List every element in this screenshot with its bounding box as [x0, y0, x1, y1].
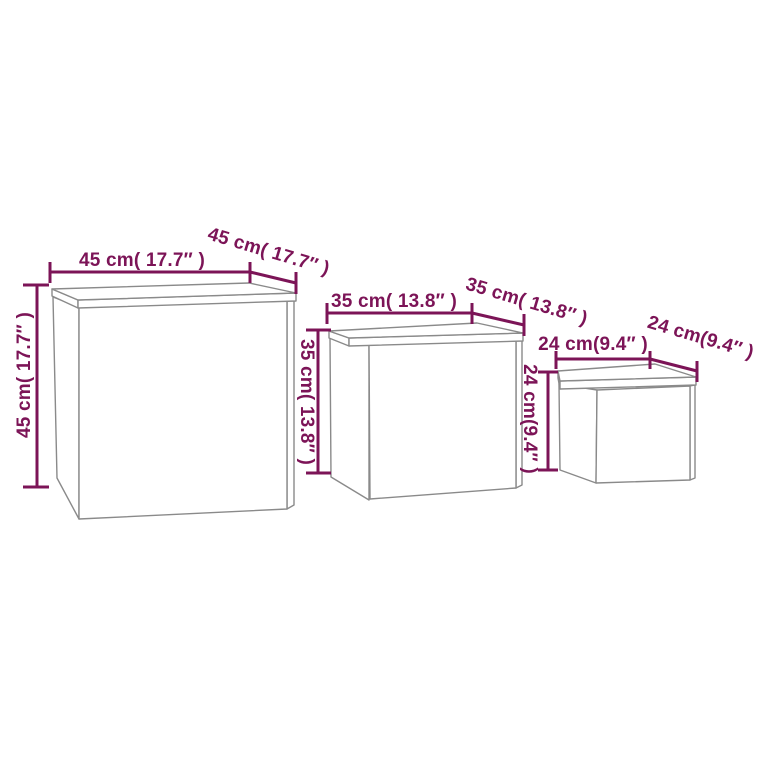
medium-depth-label: 35 cm( 13.8″ ): [463, 274, 590, 330]
large-table-right-panel: [287, 300, 294, 509]
diagram-svg: 45 cm( 17.7″ ) 45 cm( 17.7″ ) 45 cm( 17.…: [0, 0, 767, 767]
medium-height-label: 35 cm( 13.8″ ): [296, 339, 317, 465]
small-table-right-panel: [690, 385, 695, 480]
medium-table-drawing: [329, 323, 523, 500]
small-table-drawing: [558, 364, 696, 483]
large-table-front-face: [79, 301, 287, 519]
small-depth-label: 24 cm(9.4″ ): [645, 312, 756, 363]
large-height-label: 45 cm( 17.7″ ): [14, 312, 35, 438]
large-table-drawing: [52, 283, 296, 519]
large-width-label: 45 cm( 17.7″ ): [79, 250, 205, 271]
large-table-left-panel: [53, 297, 79, 519]
large-depth-dimension-line: [250, 272, 296, 283]
product-dimension-diagram: 45 cm( 17.7″ ) 45 cm( 17.7″ ) 45 cm( 17.…: [0, 0, 767, 767]
medium-table-left-panel: [330, 338, 369, 500]
small-width-label: 24 cm(9.4″ ): [538, 334, 648, 355]
medium-width-label: 35 cm( 13.8″ ): [331, 291, 457, 312]
small-height-label: 24 cm(9.4″ ): [519, 364, 540, 474]
medium-table-front-face: [369, 339, 516, 499]
small-table-front-face: [596, 386, 690, 483]
small-table-left-panel: [559, 384, 597, 483]
